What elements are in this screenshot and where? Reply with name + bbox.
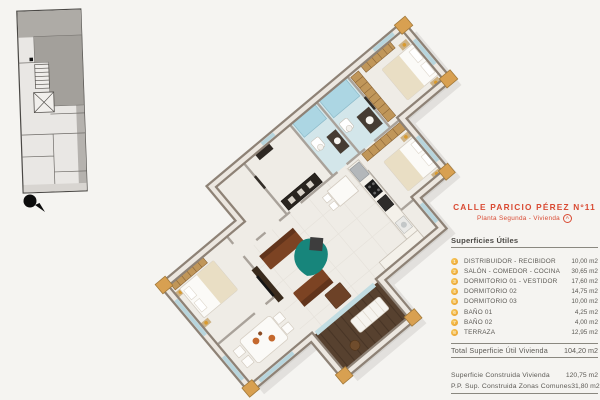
room-area-value: 14,75 m2 bbox=[571, 288, 598, 295]
area-row: 2 SALÓN - COMEDOR - COCINA 30,65 m2 bbox=[451, 266, 598, 276]
area-row: 3 DORMITORIO 01 - VESTIDOR 17,60 m2 bbox=[451, 276, 598, 286]
row-number-badge: 2 bbox=[451, 268, 458, 275]
built-area-row: P.P. Sup. Construida Zonas Comunes 31,80… bbox=[451, 381, 598, 392]
built-label: Superficie Construida Vivienda bbox=[451, 372, 550, 379]
room-label: DISTRIBUIDOR - RECIBIDOR bbox=[464, 258, 556, 265]
divider bbox=[451, 357, 598, 358]
built-areas: Superficie Construida Vivienda 120,75 m2… bbox=[451, 370, 598, 394]
unit-badge: A bbox=[563, 214, 572, 223]
row-number-badge: 7 bbox=[451, 319, 458, 326]
project-title: CALLE PARICIO PÉREZ Nº11 bbox=[451, 202, 598, 212]
room-label: TERRAZA bbox=[464, 329, 495, 336]
area-row: 8 TERRAZA 12,95 m2 bbox=[451, 327, 598, 337]
built-label: P.P. Sup. Construida Zonas Comunes bbox=[451, 383, 571, 390]
area-row: 6 BAÑO 01 4,25 m2 bbox=[451, 307, 598, 317]
room-area-value: 12,95 m2 bbox=[571, 329, 598, 336]
room-label: BAÑO 02 bbox=[464, 319, 492, 326]
divider bbox=[451, 247, 598, 248]
room-area-value: 4,25 m2 bbox=[575, 309, 598, 316]
total-useful-area-row: Total Superficie Útil Vivienda 104,20 m2 bbox=[451, 344, 598, 357]
area-summary-panel: CALLE PARICIO PÉREZ Nº11 Planta Segunda … bbox=[451, 202, 598, 394]
room-area-value: 17,60 m2 bbox=[571, 278, 598, 285]
row-number-badge: 1 bbox=[451, 258, 458, 265]
useful-areas-heading: Superficies Útiles bbox=[451, 236, 598, 245]
row-number-badge: 3 bbox=[451, 278, 458, 285]
total-value: 104,20 m2 bbox=[564, 346, 598, 355]
built-value: 31,80 m2 bbox=[571, 383, 599, 390]
row-number-badge: 4 bbox=[451, 288, 458, 295]
room-area-value: 30,65 m2 bbox=[571, 268, 598, 275]
room-label: DORMITORIO 03 bbox=[464, 298, 517, 305]
built-value: 120,75 m2 bbox=[566, 372, 598, 379]
built-area-row: Superficie Construida Vivienda 120,75 m2 bbox=[451, 370, 598, 381]
area-row: 5 DORMITORIO 03 10,00 m2 bbox=[451, 297, 598, 307]
project-subtitle: Planta Segunda - Vivienda A bbox=[451, 214, 598, 223]
divider bbox=[451, 393, 598, 394]
room-area-value: 10,00 m2 bbox=[571, 258, 598, 265]
area-rows: 1 DISTRIBUIDOR - RECIBIDOR 10,00 m2 2 SA… bbox=[451, 256, 598, 338]
coffee-table bbox=[309, 237, 323, 251]
room-label: SALÓN - COMEDOR - COCINA bbox=[464, 268, 560, 275]
area-row: 4 DORMITORIO 02 14,75 m2 bbox=[451, 287, 598, 297]
room-label: DORMITORIO 01 - VESTIDOR bbox=[464, 278, 557, 285]
area-row: 7 BAÑO 02 4,00 m2 bbox=[451, 317, 598, 327]
row-number-badge: 5 bbox=[451, 298, 458, 305]
floorplan-sheet: CALLE PARICIO PÉREZ Nº11 Planta Segunda … bbox=[0, 0, 600, 400]
room-label: BAÑO 01 bbox=[464, 309, 492, 316]
room-area-value: 4,00 m2 bbox=[575, 319, 598, 326]
row-number-badge: 6 bbox=[451, 309, 458, 316]
area-row: 1 DISTRIBUIDOR - RECIBIDOR 10,00 m2 bbox=[451, 256, 598, 266]
room-area-value: 10,00 m2 bbox=[571, 298, 598, 305]
total-label: Total Superficie Útil Vivienda bbox=[451, 346, 548, 355]
subtitle-text: Planta Segunda - Vivienda bbox=[477, 215, 560, 222]
row-number-badge: 8 bbox=[451, 329, 458, 336]
room-label: DORMITORIO 02 bbox=[464, 288, 517, 295]
